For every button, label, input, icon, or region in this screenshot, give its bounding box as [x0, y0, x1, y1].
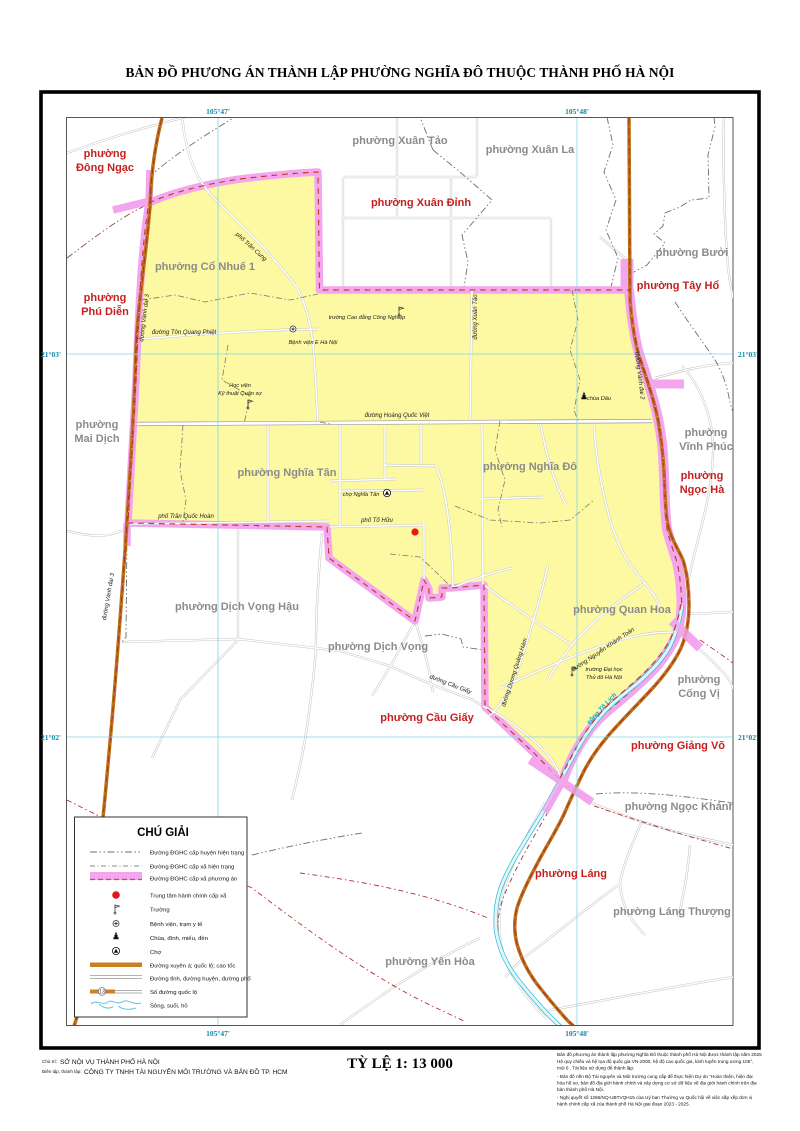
svg-text:Đường ĐGHC cấp huyện hiện trạn: Đường ĐGHC cấp huyện hiện trạng — [150, 851, 244, 857]
svg-text:Trường: Trường — [150, 908, 170, 914]
svg-text:Vĩnh Phúc: Vĩnh Phúc — [679, 441, 733, 453]
svg-text:Bản đồ phương án thành lập phư: Bản đồ phương án thành lập phường Nghĩa … — [557, 1052, 762, 1057]
svg-text:Đường xuyên á; quốc lộ; cao tố: Đường xuyên á; quốc lộ; cao tốc — [150, 964, 235, 970]
svg-text:phố Tố Hữu: phố Tố Hữu — [360, 517, 393, 524]
svg-text:phường: phường — [84, 148, 127, 160]
svg-text:trường Cao đẳng Công Nghiệp: trường Cao đẳng Công Nghiệp — [329, 314, 406, 321]
svg-text:Chủ trì:: Chủ trì: — [42, 1058, 57, 1064]
svg-text:105°48': 105°48' — [565, 107, 589, 116]
svg-text:phường Láng Thượng: phường Láng Thượng — [613, 906, 731, 918]
svg-text:phường Quan Hoa: phường Quan Hoa — [573, 604, 672, 616]
svg-text:Đông Ngạc: Đông Ngạc — [76, 162, 134, 174]
svg-text:105°47': 105°47' — [206, 107, 230, 116]
svg-text:phường Ngọc Khánh: phường Ngọc Khánh — [625, 801, 736, 813]
svg-text:đường Tôn Quang Phiệt: đường Tôn Quang Phiệt — [152, 330, 217, 336]
svg-text:Sông, suối, hồ: Sông, suối, hồ — [150, 1004, 188, 1010]
svg-text:Trung tâm hành chính cấp xã: Trung tâm hành chính cấp xã — [150, 894, 227, 900]
svg-text:Học viện: Học viện — [229, 383, 251, 389]
svg-text:Đường ĐGHC cấp xã hiện trạng: Đường ĐGHC cấp xã hiện trạng — [150, 865, 234, 871]
svg-text:21°02': 21°02' — [41, 733, 61, 742]
svg-text:phường Dịch Vọng Hậu: phường Dịch Vọng Hậu — [175, 601, 299, 613]
svg-text:Đường tỉnh, đường huyện, đường: Đường tỉnh, đường huyện, đường phố — [150, 976, 251, 983]
svg-text:Chợ: Chợ — [150, 950, 162, 956]
svg-text:phường: phường — [76, 419, 119, 431]
svg-text:hành chính cấp xã của thành ph: hành chính cấp xã của thành phố Hà Nội g… — [557, 1101, 690, 1107]
svg-text:Cống Vị: Cống Vị — [678, 688, 720, 700]
svg-text:phường Nghĩa Đô: phường Nghĩa Đô — [483, 461, 577, 473]
svg-text:- Nghị quyết số 1286/NQ-UBTVQH: - Nghị quyết số 1286/NQ-UBTVQH15 của Uỷ … — [557, 1094, 752, 1100]
svg-text:phường: phường — [681, 470, 724, 482]
svg-text:Số đường quốc lộ: Số đường quốc lộ — [150, 990, 198, 996]
svg-text:Bệnh viện E Hà Nội: Bệnh viện E Hà Nội — [289, 340, 339, 346]
svg-text:múi 6 . Tài liệu sử dụng để th: múi 6 . Tài liệu sử dụng để thành lập: — [557, 1065, 634, 1071]
svg-text:phường: phường — [84, 292, 127, 304]
svg-text:phường Cầu Giấy: phường Cầu Giấy — [380, 712, 474, 724]
svg-text:CHÚ GIẢI: CHÚ GIẢI — [137, 826, 189, 839]
svg-text:chợ Nghĩa Tân: chợ Nghĩa Tân — [343, 492, 380, 498]
svg-text:Kỹ thuật Quân sự: Kỹ thuật Quân sự — [218, 391, 262, 397]
svg-text:phường: phường — [685, 427, 728, 439]
svg-text:phường: phường — [678, 674, 721, 686]
svg-text:Phú Diễn: Phú Diễn — [81, 305, 129, 318]
svg-text:phường Giảng Võ: phường Giảng Võ — [631, 740, 725, 752]
svg-text:phường Bưởi: phường Bưởi — [656, 247, 729, 259]
svg-text:21°03': 21°03' — [41, 350, 61, 359]
svg-text:BẢN ĐỒ PHƯƠNG ÁN THÀNH LẬP PHƯ: BẢN ĐỒ PHƯƠNG ÁN THÀNH LẬP PHƯỜNG NGHĨA … — [126, 65, 675, 80]
svg-text:đường Hoàng Quốc Việt: đường Hoàng Quốc Việt — [365, 412, 430, 419]
svg-text:105°47': 105°47' — [206, 1029, 230, 1038]
svg-text:hóa hồ sơ, bản đồ địa giới hàn: hóa hồ sơ, bản đồ địa giới hành chính và… — [557, 1080, 757, 1086]
svg-text:phường Cổ Nhuế 1: phường Cổ Nhuế 1 — [155, 261, 255, 273]
svg-text:- Bản đồ nền Bộ Tài nguyên và: - Bản đồ nền Bộ Tài nguyên và Môi trường… — [557, 1073, 753, 1079]
svg-text:phố Trần Quốc Hoàn: phố Trần Quốc Hoàn — [157, 513, 214, 520]
svg-text:chùa Dâu: chùa Dâu — [587, 396, 611, 402]
svg-text:Đường ĐGHC cấp xã phương án: Đường ĐGHC cấp xã phương án — [150, 877, 237, 883]
svg-text:Mai Dịch: Mai Dịch — [74, 433, 120, 445]
svg-text:21°02': 21°02' — [738, 733, 758, 742]
svg-text:phường Xuân Tảo: phường Xuân Tảo — [352, 135, 448, 147]
svg-text:phường Láng: phường Láng — [535, 868, 607, 880]
svg-text:phường Xuân La: phường Xuân La — [486, 144, 575, 156]
svg-text:phường Dịch Vọng: phường Dịch Vọng — [328, 641, 428, 653]
svg-text:phường Nghĩa Tân: phường Nghĩa Tân — [238, 467, 337, 479]
svg-text:SỞ NỘI VỤ THÀNH PHỐ HÀ NỘI: SỞ NỘI VỤ THÀNH PHỐ HÀ NỘI — [60, 1056, 160, 1066]
svg-text:đường Vành đai 3: đường Vành đai 3 — [102, 572, 116, 621]
svg-text:đường Xuân Tảo: đường Xuân Tảo — [472, 294, 479, 340]
svg-text:Thủ đô Hà Nội: Thủ đô Hà Nội — [586, 674, 623, 681]
svg-text:TỲ LỆ 1: 13 000: TỲ LỆ 1: 13 000 — [347, 1055, 453, 1072]
svg-text:21°03': 21°03' — [738, 350, 758, 359]
svg-text:trường Đại học: trường Đại học — [585, 667, 622, 673]
svg-text:phường Xuân Đỉnh: phường Xuân Đỉnh — [371, 197, 471, 209]
svg-text:phường Yên Hòa: phường Yên Hòa — [385, 956, 475, 968]
svg-text:Hệ quy chiếu và hệ tọa độ quốc: Hệ quy chiếu và hệ tọa độ quốc gia VN-20… — [557, 1059, 754, 1064]
svg-text:phường Tây Hổ: phường Tây Hổ — [637, 280, 720, 292]
svg-text:Chùa, đình, miếu, đền: Chùa, đình, miếu, đền — [150, 936, 208, 942]
svg-text:Biên tập, thành lập:: Biên tập, thành lập: — [42, 1069, 82, 1074]
svg-text:CÔNG TY TNHH TÀI NGUYÊN MÔI TR: CÔNG TY TNHH TÀI NGUYÊN MÔI TRƯỜNG VÀ BẢ… — [84, 1066, 288, 1076]
svg-text:105°48': 105°48' — [565, 1029, 589, 1038]
svg-text:bàn thành phố Hà Nội.: bàn thành phố Hà Nội. — [557, 1087, 604, 1092]
svg-text:Ngọc Hà: Ngọc Hà — [680, 484, 726, 496]
svg-text:Bệnh viện, trạm y tế: Bệnh viện, trạm y tế — [150, 922, 203, 928]
svg-text:13: 13 — [99, 990, 105, 996]
